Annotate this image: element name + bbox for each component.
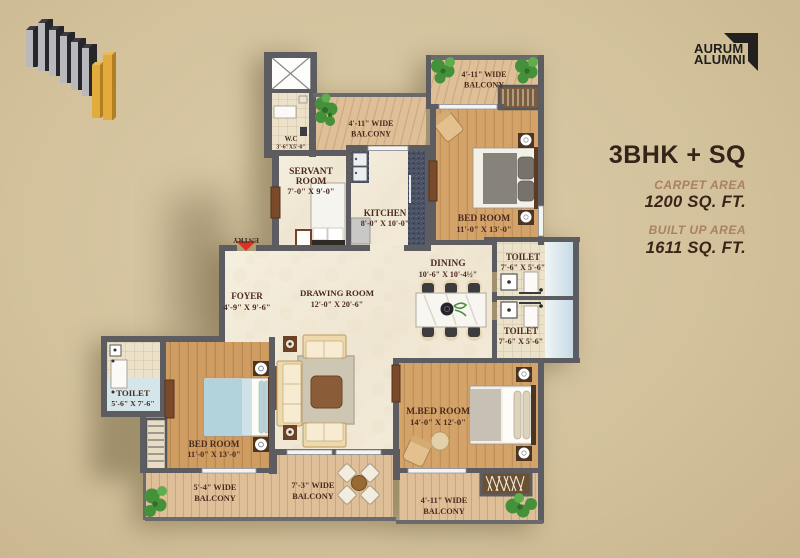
svg-text:14'-0" X 12'-0": 14'-0" X 12'-0" <box>410 417 466 427</box>
svg-text:4'-11" WIDE: 4'-11" WIDE <box>462 70 507 79</box>
svg-text:BALCONY: BALCONY <box>351 130 391 139</box>
svg-text:7'-3" WIDE: 7'-3" WIDE <box>292 481 335 490</box>
svg-text:M.BED ROOM: M.BED ROOM <box>406 407 470 417</box>
svg-text:BALCONY: BALCONY <box>423 507 465 516</box>
svg-text:TOILET: TOILET <box>504 326 538 336</box>
svg-text:DRAWING ROOM: DRAWING ROOM <box>300 288 375 298</box>
svg-text:11'-0" X 13'-0": 11'-0" X 13'-0" <box>187 450 240 459</box>
svg-text:BALCONY: BALCONY <box>194 494 236 503</box>
svg-text:4'-9" X 9'-6": 4'-9" X 9'-6" <box>223 302 270 312</box>
svg-text:BED ROOM: BED ROOM <box>189 439 240 449</box>
svg-text:5'-6" X 7'-6": 5'-6" X 7'-6" <box>111 399 154 408</box>
svg-text:BALCONY: BALCONY <box>292 492 334 501</box>
svg-text:10'-6" X 10'-4½": 10'-6" X 10'-4½" <box>419 270 477 279</box>
svg-text:7'-6" X 5'-6": 7'-6" X 5'-6" <box>501 263 545 272</box>
svg-text:12'-0" X 20'-6": 12'-0" X 20'-6" <box>311 300 363 309</box>
svg-text:TOILET: TOILET <box>116 388 150 398</box>
svg-text:4'-11" WIDE: 4'-11" WIDE <box>421 496 468 505</box>
svg-text:5'-4" WIDE: 5'-4" WIDE <box>194 483 237 492</box>
svg-text:7'-6" X 5'-6": 7'-6" X 5'-6" <box>499 337 543 346</box>
svg-text:DINING: DINING <box>430 259 466 269</box>
svg-text:BALCONY: BALCONY <box>464 81 504 90</box>
svg-text:FOYER: FOYER <box>231 291 263 301</box>
svg-text:4'-11" WIDE: 4'-11" WIDE <box>349 119 394 128</box>
